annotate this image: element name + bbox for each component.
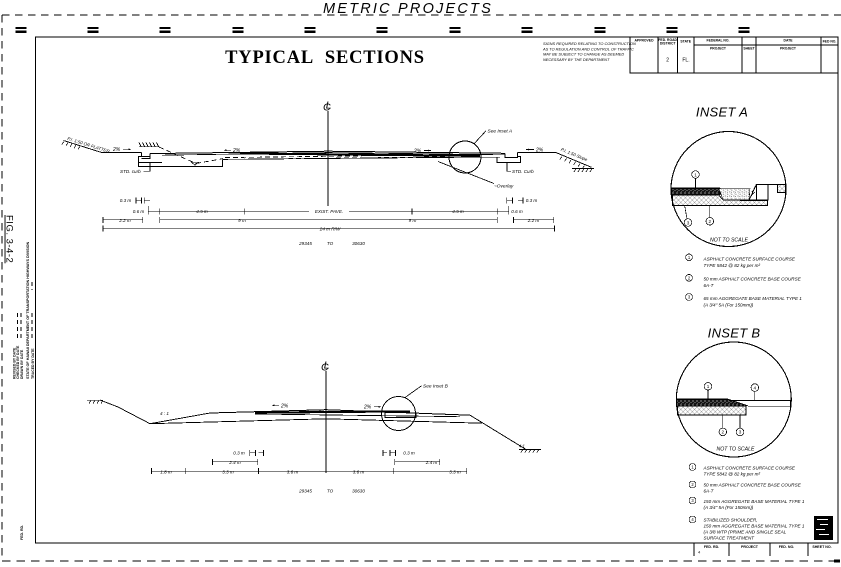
svg-text:MAY BE SUBJECT TO CHANGE AS DE: MAY BE SUBJECT TO CHANGE AS DEEMED	[543, 52, 624, 57]
svg-text:9 m: 9 m	[238, 218, 246, 223]
svg-text:0.3 m: 0.3 m	[403, 451, 415, 456]
svg-text:TYPE 5842 @ 82 kg per m²: TYPE 5842 @ 82 kg per m²	[704, 472, 761, 477]
svg-text:9 m: 9 m	[409, 218, 417, 223]
svg-text:FIG. 3-4-2: FIG. 3-4-2	[4, 215, 15, 263]
svg-text:(A 3/8 WTP (PRIME AND SINGLE S: (A 3/8 WTP (PRIME AND SINGLE SEAL	[704, 530, 787, 535]
svg-text:0.6 m: 0.6 m	[511, 209, 523, 214]
svg-text:3.6 m: 3.6 m	[353, 469, 365, 474]
svg-text:3.6 m: 3.6 m	[287, 469, 299, 474]
svg-text:PROJECT: PROJECT	[710, 47, 727, 51]
svg-text:TYPICAL SECTIONS: TYPICAL SECTIONS	[225, 48, 425, 68]
svg-text:65 mm AGGREGATE BASE MATERIAL: 65 mm AGGREGATE BASE MATERIAL TYPE 1	[704, 296, 803, 301]
svg-text:2%: 2%	[363, 405, 372, 411]
svg-text:SHEET NO.: SHEET NO.	[812, 545, 831, 549]
svg-text:NOT TO SCALE: NOT TO SCALE	[710, 238, 748, 244]
svg-text:FEDERAL NO.: FEDERAL NO.	[707, 39, 730, 43]
svg-text:2.2 m: 2.2 m	[527, 218, 540, 223]
svg-text:2%: 2%	[232, 148, 241, 154]
svg-text:DISTRICT: DISTRICT	[660, 42, 677, 46]
svg-text:TO: TO	[327, 489, 334, 494]
svg-text:2.2 m: 2.2 m	[118, 218, 131, 223]
svg-text:TRACED BY DATE: TRACED BY DATE	[31, 348, 35, 379]
svg-text:SHEET: SHEET	[743, 47, 755, 51]
svg-text:4.5 m: 4.5 m	[196, 209, 208, 214]
svg-text:(A 3/4" 5A (For 150mm)): (A 3/4" 5A (For 150mm))	[704, 302, 754, 307]
svg-text:PROJECT: PROJECT	[741, 545, 759, 549]
svg-text:2%: 2%	[112, 147, 121, 153]
svg-text:DRAWN BY DATE: DRAWN BY DATE	[20, 349, 24, 379]
svg-text:PROJECT: PROJECT	[780, 47, 797, 51]
svg-text:2%: 2%	[535, 148, 544, 154]
svg-text:SURFACE TREATMENT: SURFACE TREATMENT	[704, 536, 756, 541]
svg-text:150 mm AGGREGATE BASE MATERIAL: 150 mm AGGREGATE BASE MATERIAL TYPE 1	[704, 499, 805, 504]
svg-text:4.5 m: 4.5 m	[452, 209, 464, 214]
svg-text:FED. RD.: FED. RD.	[20, 525, 24, 540]
svg-text:STATE: STATE	[680, 40, 691, 44]
svg-text:150 mm AGGREGATE BASE MATERIAL: 150 mm AGGREGATE BASE MATERIAL TYPE 1	[704, 524, 805, 529]
svg-text:FL.: FL.	[682, 58, 689, 64]
svg-text:2: 2	[666, 58, 669, 64]
svg-text:4 : 1: 4 : 1	[160, 411, 169, 416]
svg-text:0.6 m: 0.6 m	[133, 209, 145, 214]
svg-text:STABILIZED SHOULDER,: STABILIZED SHOULDER,	[704, 518, 758, 523]
svg-text:METRIC PROJECTS: METRIC PROJECTS	[323, 1, 493, 17]
svg-text:30630: 30630	[352, 489, 365, 494]
svg-text:(A 3/4" 5A (For 150mm)): (A 3/4" 5A (For 150mm))	[704, 505, 754, 510]
svg-text:STD. curb: STD. curb	[120, 169, 141, 174]
svg-text:1.8 m: 1.8 m	[160, 469, 172, 474]
svg-text:STD. Curb: STD. Curb	[512, 169, 534, 174]
svg-text:FED NO.: FED NO.	[823, 40, 837, 44]
svg-text:TYPE 5842 @ 82 kg per m²: TYPE 5842 @ 82 kg per m²	[704, 263, 761, 268]
svg-text:0.3 m: 0.3 m	[120, 198, 132, 203]
svg-text:EXIST. PAVE.: EXIST. PAVE.	[315, 209, 343, 214]
svg-text:2: 2	[722, 430, 725, 435]
svg-text:0.3 m: 0.3 m	[233, 451, 245, 456]
svg-text:50 mm ASPHALT CONCRETE BASE CO: 50 mm ASPHALT CONCRETE BASE COURSE	[704, 483, 802, 488]
svg-text:ASPHALT CONCRETE SURFACE COURS: ASPHALT CONCRETE SURFACE COURSE	[703, 466, 796, 471]
svg-text:24 m R/W: 24 m R/W	[319, 227, 341, 232]
svg-text:4:1: 4:1	[519, 444, 525, 449]
svg-text:2.4 m: 2.4 m	[228, 460, 241, 465]
svg-text:ASPHALT CONCRETE SURFACE COURS: ASPHALT CONCRETE SURFACE COURSE	[703, 257, 796, 262]
svg-text:STATE OF HAWAII DEPARTMENT OF: STATE OF HAWAII DEPARTMENT OF TRANSPORTA…	[26, 241, 30, 379]
svg-text:1: 1	[694, 172, 697, 177]
svg-text:30630: 30630	[352, 241, 365, 246]
svg-text:50 mm ASPHALT CONCRETE BASE CO: 50 mm ASPHALT CONCRETE BASE COURSE	[704, 277, 802, 282]
svg-text:3: 3	[739, 430, 742, 435]
svg-text:29345: 29345	[298, 489, 312, 494]
svg-text:DATE: DATE	[784, 39, 794, 43]
svg-text:L: L	[324, 360, 330, 372]
svg-text:FED. NO.: FED. NO.	[779, 545, 795, 549]
svg-text:TO: TO	[327, 241, 334, 246]
svg-text:2.4 m: 2.4 m	[425, 460, 438, 465]
svg-text:FED. RD.: FED. RD.	[704, 545, 719, 549]
svg-text:2%: 2%	[413, 148, 422, 154]
svg-text:3: 3	[687, 220, 690, 225]
svg-text:INSET A: INSET A	[696, 105, 748, 120]
svg-text:2: 2	[709, 219, 712, 224]
svg-text:NOT TO SCALE: NOT TO SCALE	[717, 447, 755, 453]
svg-text:3.3 m: 3.3 m	[449, 469, 461, 474]
svg-text:AS TO REGULATION AND CONTROL O: AS TO REGULATION AND CONTROL OF TRAFFIC	[542, 46, 634, 51]
svg-text:1: 1	[707, 384, 710, 389]
svg-text:NECESSARY BY THE DEPARTMENT: NECESSARY BY THE DEPARTMENT	[543, 57, 610, 62]
svg-text:3.3 m: 3.3 m	[222, 469, 234, 474]
svg-text:APPROVED: APPROVED	[634, 39, 654, 43]
svg-text:L: L	[326, 100, 332, 112]
svg-text:6A-T: 6A-T	[704, 283, 715, 288]
svg-text:~Overlay: ~Overlay	[494, 184, 514, 190]
svg-text:See Inset A: See Inset A	[488, 129, 513, 135]
svg-text:4: 4	[754, 385, 757, 390]
svg-text:29345: 29345	[298, 241, 312, 246]
svg-text:See Inset B: See Inset B	[423, 384, 449, 390]
svg-text:SIGNS REQUIRED RELATING TO CON: SIGNS REQUIRED RELATING TO CONSTRUCTION	[543, 41, 636, 46]
svg-text:6A-T: 6A-T	[704, 489, 715, 494]
svg-text:2%: 2%	[280, 403, 289, 409]
svg-text:INSET B: INSET B	[708, 326, 761, 341]
svg-text:0.3 m: 0.3 m	[526, 198, 538, 203]
